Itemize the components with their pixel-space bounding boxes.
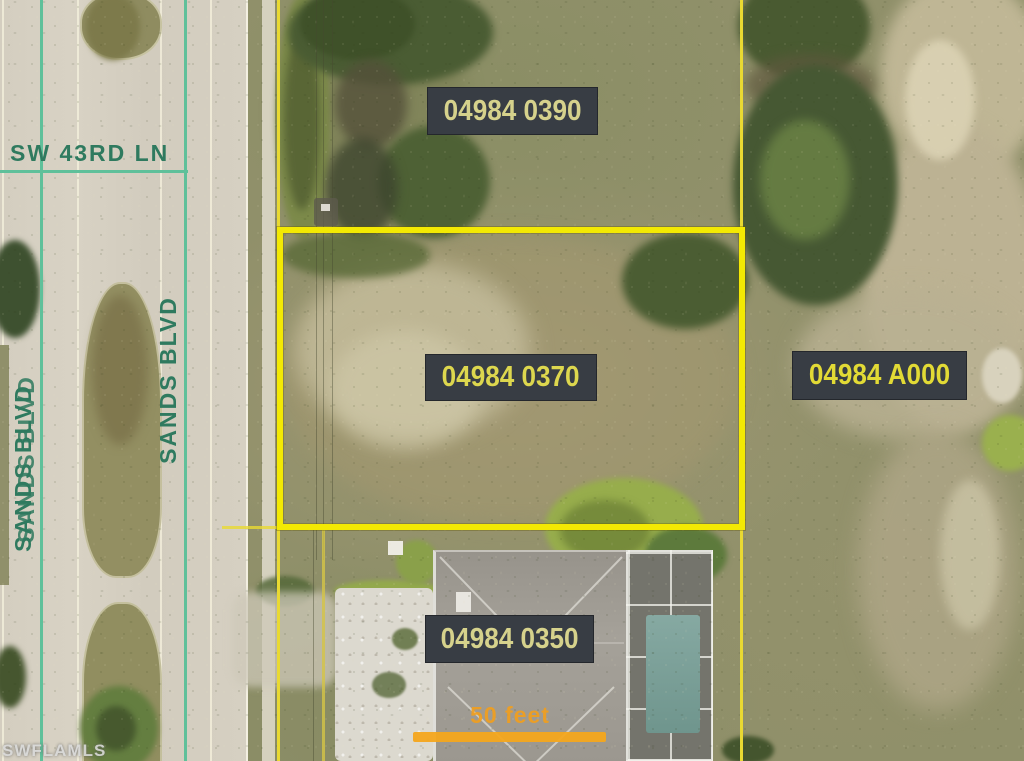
dirt-speckle [905,40,975,160]
parcel-line [222,526,278,529]
grass-sliver [0,345,9,585]
parcel-label-04984-A000: 04984 A000 [792,351,967,400]
street-label-sw-43rd-ln: SW 43RD LN [10,140,169,167]
entry-stoop [456,592,471,612]
street-centerline [40,0,43,761]
parcel-label-text: 04984 0350 [441,623,579,656]
utility-pole [314,198,338,226]
pool [646,615,700,733]
driveway-weed [372,672,406,698]
scale-bar [413,732,606,742]
lane-line [210,0,212,761]
parcel-label-text: 04984 0370 [442,361,580,394]
parcel-line [277,528,280,761]
street-label-text: SANDS BLVD [155,296,181,464]
parcel-map: 04984 0390 04984 0370 04984 A000 04984 0… [0,0,1024,761]
parcel-label-04984-0370: 04984 0370 [425,354,597,401]
parcel-line [322,528,325,761]
power-line [313,528,314,761]
white-rocks [982,348,1022,403]
utility-pole-top [321,204,330,211]
tree-shadow [335,60,407,148]
bush-small [722,736,774,761]
median-shrub [92,295,148,445]
parcel-line [740,0,743,229]
lane-line [77,0,79,761]
scale-bar-label: 50 feet [404,702,616,729]
street-label-sands-blvd-left: SANDS BLVD SANDS BLVD [10,368,36,568]
parcel-line [277,0,280,229]
street-centerline [0,170,188,173]
large-tree-highlight [760,120,850,240]
parcel-label-04984-0350: 04984 0350 [425,615,594,663]
utility-box [388,541,403,555]
parcel-label-04984-0390: 04984 0390 [427,87,598,135]
watermark: SWFLAMLS [2,741,106,761]
parcel-label-text: 04984 A000 [809,359,950,392]
parcel-line [740,528,743,761]
dirt-speckle [940,480,1000,630]
street-label-sands-blvd-right: SANDS BLVD [155,285,181,475]
street-centerline [184,0,187,761]
driveway-weed [392,628,418,650]
parcel-label-text: 04984 0390 [444,95,582,128]
street-label-ghost-text: SANDS BLVD [13,359,40,559]
